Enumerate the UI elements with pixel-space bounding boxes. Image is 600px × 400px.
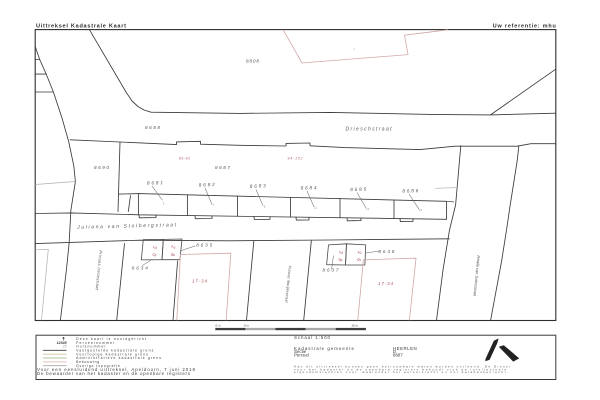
svg-text:8683: 8683 [250,183,267,189]
svg-text:8685: 8685 [350,187,367,193]
svg-text:8687: 8687 [393,353,403,358]
svg-text:HEERLEN: HEERLEN [393,346,417,351]
svg-text:Uittreksel Kadastrale Kaart: Uittreksel Kadastrale Kaart [36,24,126,30]
svg-text:Perceel: Perceel [294,353,309,358]
svg-text:94-102: 94-102 [288,157,303,161]
svg-text:5 m: 5 m [244,323,250,327]
svg-text:8684: 8684 [300,185,317,191]
svg-text:8808: 8808 [246,58,259,63]
svg-text:25 m: 25 m [352,323,359,327]
svg-text:De bewaarder van het kadaster: De bewaarder van het kadaster en de open… [37,371,191,376]
svg-text:86-92: 86-92 [179,156,190,160]
svg-text:eigendomsrechten voor, waarond: eigendomsrechten voor, waaronder het aut… [294,370,508,374]
svg-text:Schaal 1:500: Schaal 1:500 [294,335,331,340]
svg-text:8638: 8638 [378,249,394,254]
svg-text:17-34: 17-34 [378,281,393,286]
svg-text:8637: 8637 [323,268,339,273]
svg-text:11: 11 [314,206,317,210]
svg-text:8686: 8686 [402,188,419,194]
svg-text:8682: 8682 [199,182,216,188]
svg-text:13: 13 [366,207,369,211]
svg-text:15: 15 [419,208,422,212]
svg-text:8635: 8635 [196,242,212,247]
svg-text:17-34: 17-34 [192,279,207,284]
svg-text:0 m: 0 m [216,323,222,327]
svg-text:Uw referentie: mhu: Uw referentie: mhu [493,24,556,30]
svg-text:8681: 8681 [147,180,164,186]
svg-text:8688: 8688 [145,125,160,130]
svg-text:25: 25 [62,345,67,349]
svg-text:8634: 8634 [132,266,148,271]
svg-text:8690: 8690 [94,165,109,170]
svg-text:8687: 8687 [215,165,230,170]
